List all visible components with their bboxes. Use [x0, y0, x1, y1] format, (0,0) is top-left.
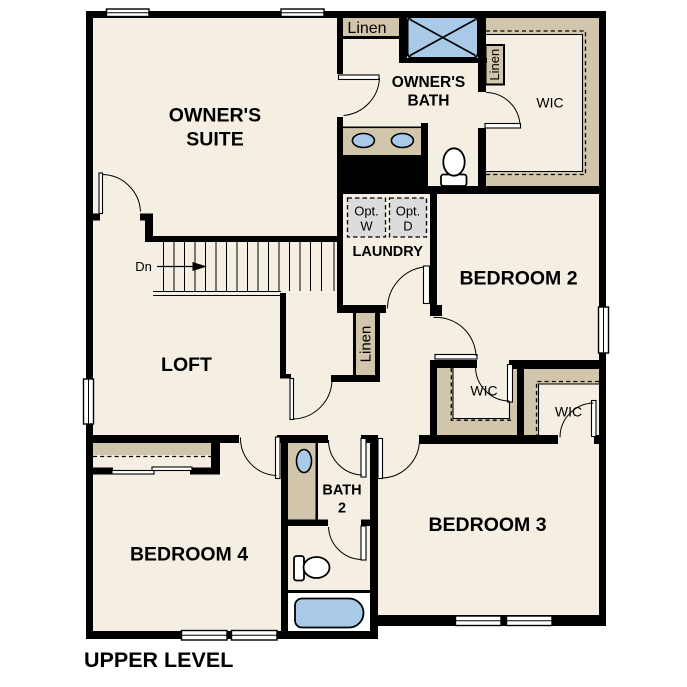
svg-text:W: W: [360, 219, 373, 234]
svg-text:UPPER LEVEL: UPPER LEVEL: [84, 648, 233, 672]
svg-text:Linen: Linen: [358, 326, 375, 363]
svg-text:Dn: Dn: [135, 259, 152, 274]
svg-text:LOFT: LOFT: [161, 354, 212, 376]
svg-text:2: 2: [338, 501, 346, 517]
svg-text:Linen: Linen: [347, 20, 386, 37]
svg-text:BEDROOM 2: BEDROOM 2: [459, 268, 577, 290]
svg-text:LAUNDRY: LAUNDRY: [353, 244, 424, 260]
svg-text:BEDROOM 3: BEDROOM 3: [428, 514, 546, 536]
svg-text:WIC: WIC: [470, 383, 497, 399]
svg-text:BEDROOM 4: BEDROOM 4: [130, 544, 248, 566]
svg-text:OWNER'S: OWNER'S: [169, 104, 261, 126]
svg-text:D: D: [403, 219, 412, 234]
svg-text:WIC: WIC: [555, 404, 582, 420]
svg-text:Linen: Linen: [487, 49, 502, 81]
svg-text:BATH: BATH: [408, 93, 450, 110]
svg-text:WIC: WIC: [536, 95, 563, 111]
svg-text:BATH: BATH: [322, 483, 361, 499]
svg-text:OWNER'S: OWNER'S: [392, 74, 465, 91]
svg-text:Opt.: Opt.: [354, 204, 379, 219]
svg-text:Opt.: Opt.: [396, 204, 421, 219]
svg-text:SUITE: SUITE: [186, 129, 243, 151]
